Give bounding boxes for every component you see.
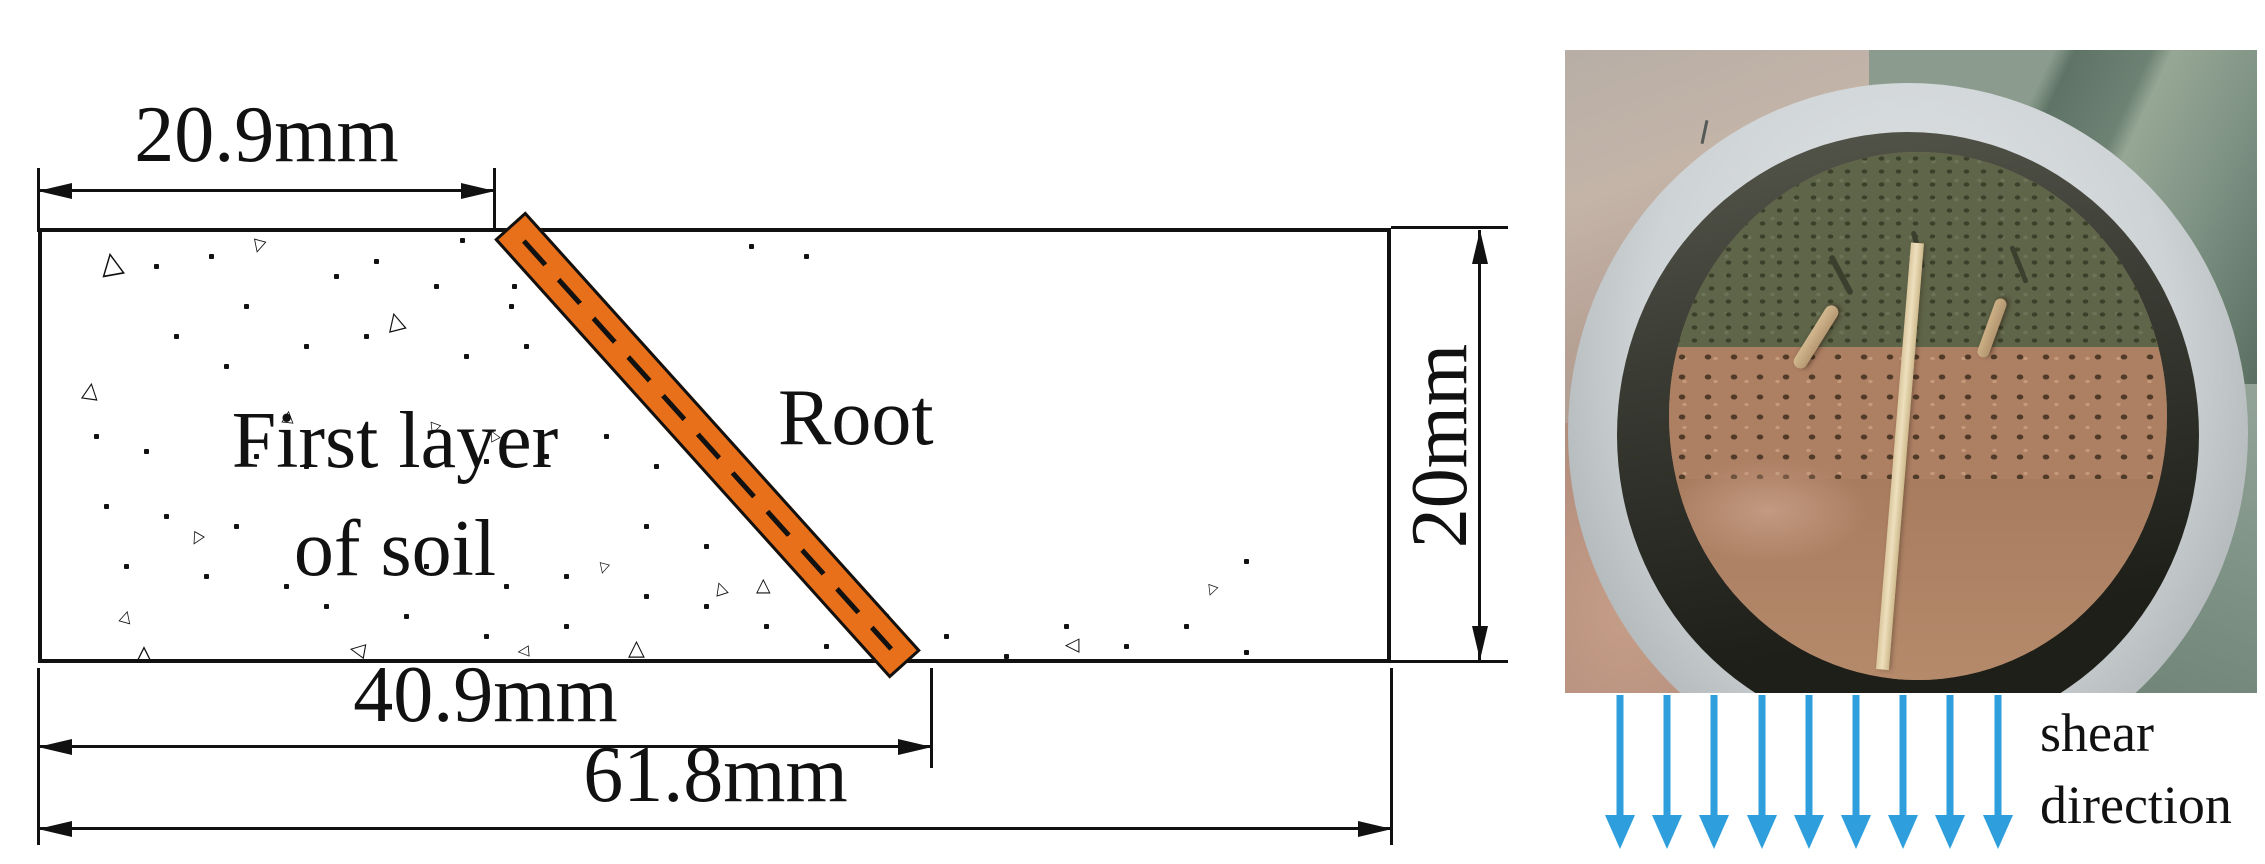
soil-dot-mark	[94, 434, 99, 439]
soil-dot-mark	[804, 254, 809, 259]
soil-dot-mark	[224, 364, 229, 369]
extension-line	[1391, 660, 1508, 663]
arrowhead-left-icon	[38, 183, 72, 199]
dimension-bottom-inner-label: 40.9mm	[38, 655, 933, 735]
shear-direction-label-line1: shear	[2040, 697, 2232, 769]
down-arrow-icon	[1699, 695, 1729, 849]
extension-line	[493, 168, 496, 232]
soil-dot-mark	[1124, 644, 1129, 649]
soil-dot-mark	[509, 304, 514, 309]
soil-layer-label: First layer of soil	[110, 387, 680, 603]
soil-triangle-mark: △	[250, 237, 267, 257]
shear-direction-arrows	[1605, 695, 2035, 850]
soil-dot-mark	[704, 604, 709, 609]
soil-dot-mark	[1244, 559, 1249, 564]
down-arrow-icon	[1841, 695, 1871, 849]
soil-triangle-mark: △	[1204, 583, 1219, 600]
soil-triangle-mark: △	[81, 379, 101, 403]
soil-dot-mark	[764, 624, 769, 629]
soil-dot-mark	[464, 354, 469, 359]
down-arrow-icon	[1888, 695, 1918, 849]
down-arrow-icon	[1794, 695, 1824, 849]
down-arrow-icon	[1935, 695, 1965, 849]
soil-dot-mark	[484, 634, 489, 639]
soil-layer-label-line2: of soil	[110, 495, 680, 603]
soil-dot-mark	[749, 244, 754, 249]
figure-canvas: 20.9mm △△△△△△△△△△△△△△△△△△ First layer of…	[0, 0, 2265, 864]
soil-triangle-mark: △	[1062, 638, 1081, 653]
extension-line	[37, 168, 40, 232]
soil-dot-mark	[404, 614, 409, 619]
soil-dot-mark	[374, 259, 379, 264]
dimension-line	[38, 189, 495, 192]
soil-dot-mark	[304, 344, 309, 349]
extension-line	[1391, 226, 1508, 229]
soil-triangle-mark: △	[712, 578, 730, 598]
shear-box-photo	[1565, 50, 2257, 693]
down-arrow-icon	[1605, 695, 1635, 849]
soil-triangle-mark: △	[118, 607, 134, 626]
soil-specimen	[1669, 152, 2167, 680]
dimension-right-label: 20mm	[1400, 344, 1480, 548]
soil-dot-mark	[460, 238, 465, 243]
soil-dot-mark	[324, 604, 329, 609]
shear-direction-label: shear direction	[2040, 697, 2232, 841]
shear-direction-label-line2: direction	[2040, 769, 2232, 841]
dimension-line	[38, 827, 1392, 830]
arrowhead-left-icon	[38, 821, 72, 837]
root-label: Root	[778, 378, 934, 458]
soil-dot-mark	[1244, 650, 1249, 655]
down-arrow-icon	[1983, 695, 2013, 849]
soil-dot-mark	[244, 304, 249, 309]
soil-dot-mark	[524, 344, 529, 349]
soil-layer-label-line1: First layer	[110, 387, 680, 495]
arrowhead-right-icon	[461, 183, 495, 199]
soil-dot-mark	[944, 634, 949, 639]
soil-dot-mark	[824, 644, 829, 649]
soil-dot-mark	[564, 624, 569, 629]
soil-dot-mark	[154, 264, 159, 269]
soil-dot-mark	[1184, 624, 1189, 629]
soil-triangle-mark: △	[756, 576, 771, 595]
soil-dot-mark	[209, 254, 214, 259]
soil-highlight	[1669, 458, 1868, 564]
soil-dot-mark	[1064, 624, 1069, 629]
soil-triangle-mark: △	[98, 246, 126, 280]
soil-dot-mark	[512, 284, 517, 289]
soil-dot-mark	[434, 284, 439, 289]
soil-triangle-mark: △	[383, 306, 407, 334]
arrowhead-down-icon	[1472, 626, 1488, 660]
dimension-top-label: 20.9mm	[38, 95, 495, 175]
arrowhead-up-icon	[1472, 230, 1488, 264]
soil-dot-mark	[364, 334, 369, 339]
arrowhead-right-icon	[1358, 821, 1392, 837]
dimension-bottom-outer-label: 61.8mm	[38, 735, 1393, 815]
soil-dot-mark	[704, 544, 709, 549]
down-arrow-icon	[1652, 695, 1682, 849]
soil-dot-mark	[174, 334, 179, 339]
soil-dot-mark	[104, 504, 109, 509]
down-arrow-icon	[1747, 695, 1777, 849]
soil-dot-mark	[334, 274, 339, 279]
soil-dot-mark	[1004, 654, 1009, 659]
